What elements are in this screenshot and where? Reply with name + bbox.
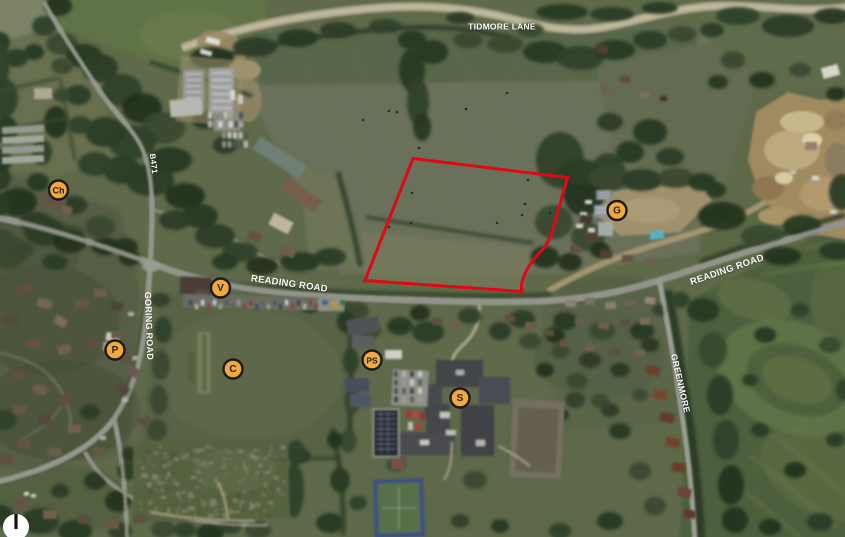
svg-text:G: G <box>613 206 621 217</box>
svg-text:TIDMORE LANE: TIDMORE LANE <box>468 22 536 32</box>
svg-text:Ch: Ch <box>53 186 65 196</box>
svg-text:V: V <box>217 283 224 294</box>
svg-text:C: C <box>229 364 236 375</box>
svg-text:PS: PS <box>366 356 378 366</box>
svg-text:P: P <box>112 345 119 356</box>
svg-text:S: S <box>457 393 464 404</box>
